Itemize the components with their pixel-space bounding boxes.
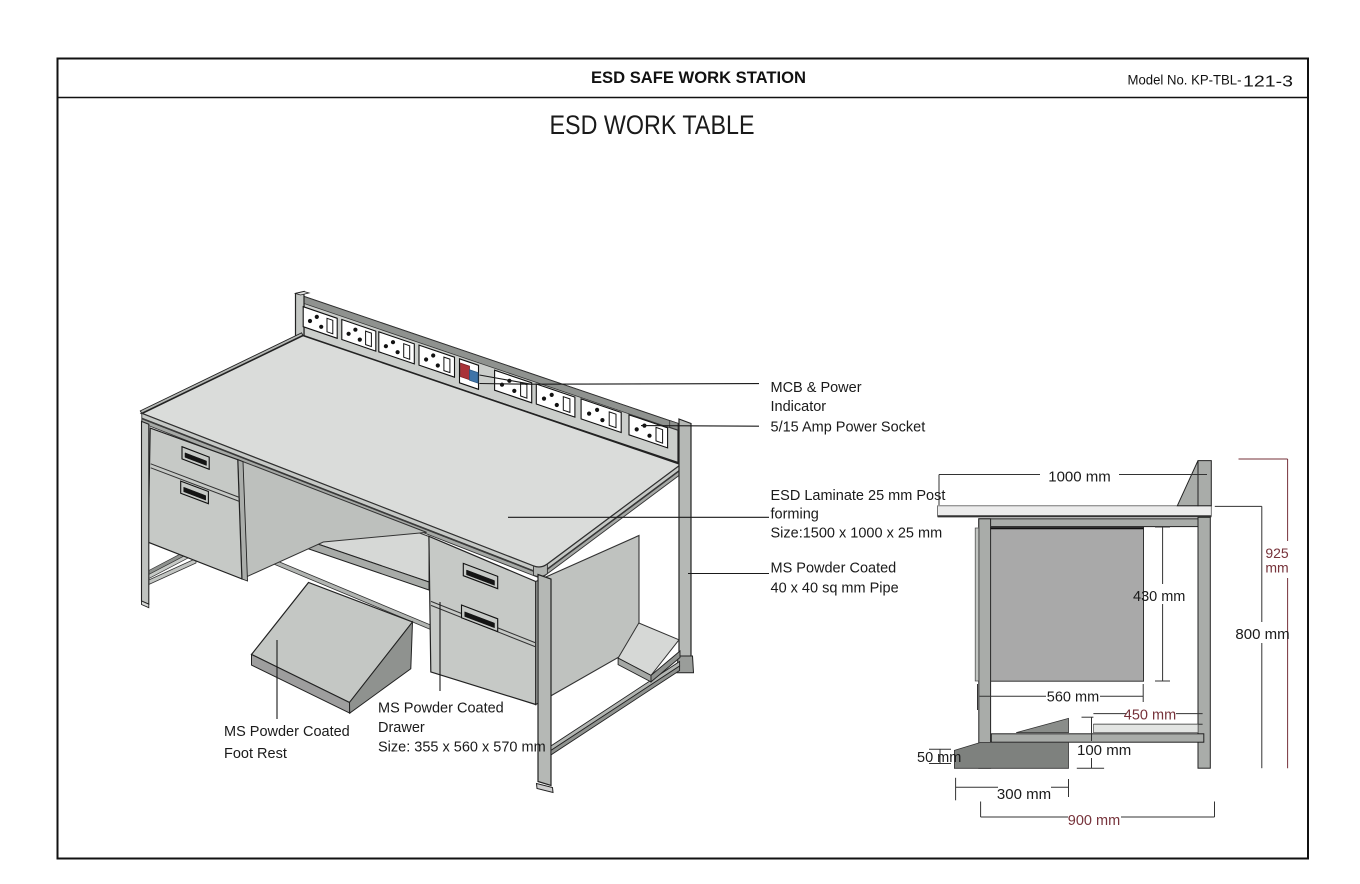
svg-text:450 mm: 450 mm [1124,708,1176,724]
svg-text:ESD WORK TABLE: ESD WORK TABLE [550,110,755,140]
svg-text:mm: mm [1265,560,1288,576]
svg-text:900 mm: 900 mm [1068,813,1120,829]
svg-text:MS Powder Coated: MS Powder Coated [771,561,897,577]
svg-text:ESD SAFE WORK STATION: ESD SAFE WORK STATION [591,69,806,87]
svg-text:5/15 Amp Power Socket: 5/15 Amp Power Socket [771,420,926,436]
svg-text:Indicator: Indicator [771,399,827,415]
svg-text:Drawer: Drawer [378,720,425,736]
svg-text:430 mm: 430 mm [1133,589,1185,605]
svg-text:Model No. KP-TBL-: Model No. KP-TBL- [1128,73,1242,88]
svg-text:560 mm: 560 mm [1047,690,1099,706]
svg-text:121-3: 121-3 [1243,74,1293,91]
svg-text:800 mm: 800 mm [1235,626,1289,643]
svg-text:100 mm: 100 mm [1077,742,1131,759]
svg-text:300 mm: 300 mm [997,786,1051,803]
svg-text:MS Powder Coated: MS Powder Coated [224,724,350,740]
svg-text:40 x 40 sq mm Pipe: 40 x 40 sq mm Pipe [771,581,899,597]
svg-text:MCB & Power: MCB & Power [771,380,862,396]
svg-text:50 mm: 50 mm [917,750,961,766]
svg-text:Size:1500 x 1000 x 25 mm: Size:1500 x 1000 x 25 mm [771,526,943,542]
svg-text:forming: forming [771,507,819,523]
svg-text:1000 mm: 1000 mm [1048,469,1111,486]
svg-text:Foot Rest: Foot Rest [224,746,287,762]
svg-text:MS Powder Coated: MS Powder Coated [378,701,504,717]
svg-text:Size: 355 x 560 x 570 mm: Size: 355 x 560 x 570 mm [378,740,546,756]
svg-text:ESD Laminate 25 mm Post: ESD Laminate 25 mm Post [771,488,946,504]
